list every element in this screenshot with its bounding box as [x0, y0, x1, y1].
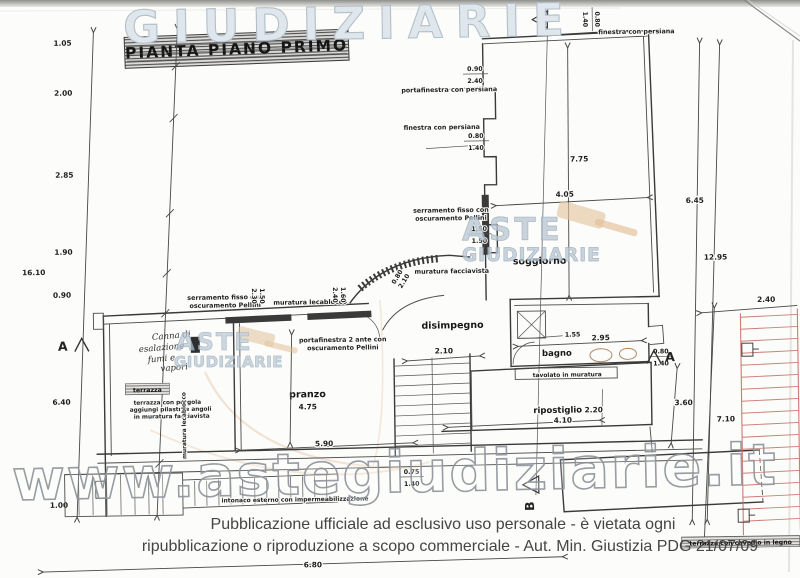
watermark-aste: ASTE	[462, 212, 563, 248]
watermark-giudiziarie: GIUDIZIARIE	[174, 353, 283, 371]
terrazza-label-group: terrazza terrazza con pergola aggiungi p…	[125, 383, 211, 421]
dim-bagno-shower: 1.55	[565, 331, 581, 338]
wc-fixture	[590, 349, 612, 362]
dim-seg: 2.00	[54, 89, 72, 98]
dim-pergola-width: 2.40	[757, 295, 775, 304]
footer-disclaimer: Pubblicazione ufficiale ad esclusivo uso…	[142, 516, 758, 555]
bagno-walls	[510, 297, 664, 366]
section-marker-a-left: A	[58, 338, 89, 353]
dim-win-w: 0.80	[468, 133, 484, 140]
footer-line-2: ripubblicazione o riproduzione a scopo c…	[142, 538, 758, 555]
watermark-site-url: www.astegiudiziarie.it	[12, 432, 779, 514]
bidet-fixture	[619, 348, 636, 359]
dim-seg: 2.85	[55, 171, 73, 180]
label-portafinestra: portafinestra con persiana	[401, 85, 497, 94]
dim-disimpegno-w: 2.10	[435, 346, 453, 355]
dim-soggiorno-w: 4.05	[556, 190, 574, 199]
terrazza-note: in muratura facciavista	[134, 414, 210, 421]
scanned-floor-plan-page: PIANTA PIANO PRIMO 16.10 1.05 2.00 2.85 …	[0, 0, 800, 578]
dim-serr-top-b: 2.30	[250, 288, 257, 304]
dim-seg: 0.90	[53, 291, 71, 300]
section-marker-a: A	[665, 349, 675, 364]
dim-serr-top-a: 1.50	[258, 288, 265, 304]
dim-bagno-w: 2.95	[592, 333, 610, 342]
footer-line-1: Pubblicazione ufficiale ad esclusivo uso…	[211, 516, 676, 533]
dim-pf-w: 0.90	[467, 66, 483, 73]
terrazza-note: terrazza con pergola	[134, 400, 202, 407]
label-finestra: finestra con persiana	[404, 123, 480, 132]
dim-leca-b: 2.40	[331, 287, 338, 303]
room-label-terrazza: terrazza	[133, 387, 162, 394]
floor-plan-scan: PIANTA PIANO PRIMO 16.10 1.05 2.00 2.85 …	[0, 0, 800, 578]
dim-ripostiglio-d: 2.20	[585, 405, 603, 414]
terrazza-note: aggiungi pilastri e angoli	[130, 407, 212, 414]
dim-pranzo-h: 4.75	[299, 402, 317, 411]
gavel-handle-icon	[264, 340, 298, 354]
dim-seg: 1.90	[54, 248, 72, 257]
dim-bottom-w: 6.80	[304, 560, 322, 569]
label-finestra: finestra con persiana	[598, 27, 674, 36]
watermark-aste: ASTE	[176, 328, 253, 356]
watermark-giudiziarie: GIUDIZIARIE	[462, 245, 601, 266]
dim-right-outer: 12.95	[704, 252, 728, 261]
dim-right-inner: 6.45	[686, 196, 704, 205]
room-label-disimpegno: disimpegno	[421, 320, 484, 332]
dim-win-h: 1.40	[468, 145, 484, 152]
dim-soggiorno-h: 7.75	[570, 154, 588, 163]
disimpegno-dimension: 2.10	[407, 346, 480, 361]
dim-seg: 6.40	[52, 398, 70, 407]
dim-right-low-a: 3.60	[674, 398, 692, 407]
dim-pf-h: 2.40	[467, 78, 483, 85]
label-muratura-facciavista: muratura facciavista	[414, 267, 489, 276]
dim-right-low-b: 7.10	[717, 414, 735, 423]
room-label-pranzo: pranzo	[289, 389, 326, 401]
watermark-brand-top: GIUDIZIARIE	[123, 0, 578, 54]
room-label-ripostiglio: ripostiglio	[533, 405, 582, 416]
section-marker-a: A	[58, 339, 68, 354]
bottom-dimension: 6.80	[43, 557, 563, 573]
label-oscuramento: oscuramento Pellini	[307, 343, 379, 352]
label-tavolato: tavolato in muratura	[533, 372, 602, 379]
dim-seg: 1.05	[53, 39, 71, 48]
watermark-url: www.astegiudiziarie.it	[12, 432, 779, 514]
room-label-bagno: bagno	[542, 349, 572, 359]
dim-left-total: 16.10	[22, 268, 46, 277]
dim-leca-a: 1.60	[339, 287, 346, 303]
watermark-top: GIUDIZIARIE	[123, 0, 578, 54]
dim-win-h: 1.40	[581, 12, 588, 28]
dim-win-w: 0.80	[593, 11, 600, 27]
dim-ripostiglio-w: 4.10	[554, 416, 572, 425]
watermark-left: ASTE GIUDIZIARIE	[174, 326, 298, 371]
